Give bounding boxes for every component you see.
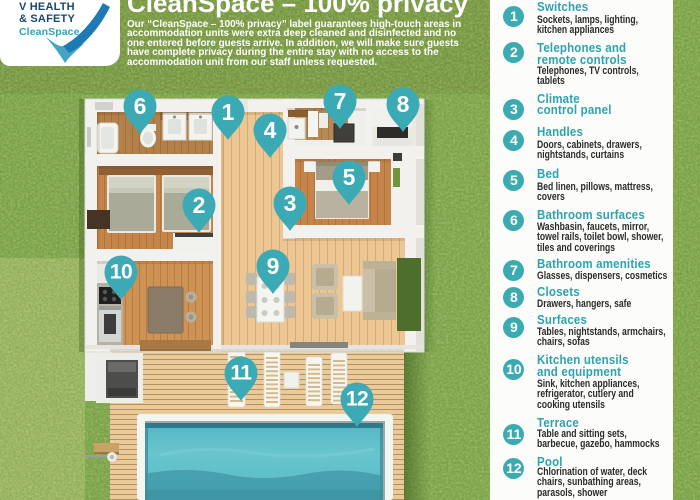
svg-text:3: 3 [284, 190, 297, 216]
svg-text:6: 6 [134, 93, 147, 119]
svg-text:10: 10 [110, 261, 132, 284]
svg-text:2: 2 [193, 192, 206, 218]
svg-text:12: 12 [346, 388, 368, 411]
svg-text:4: 4 [264, 117, 277, 143]
svg-text:7: 7 [334, 88, 347, 114]
svg-text:9: 9 [267, 253, 280, 279]
svg-text:1: 1 [222, 99, 235, 125]
svg-text:5: 5 [343, 164, 356, 190]
svg-text:11: 11 [230, 362, 252, 385]
svg-text:8: 8 [397, 91, 410, 117]
